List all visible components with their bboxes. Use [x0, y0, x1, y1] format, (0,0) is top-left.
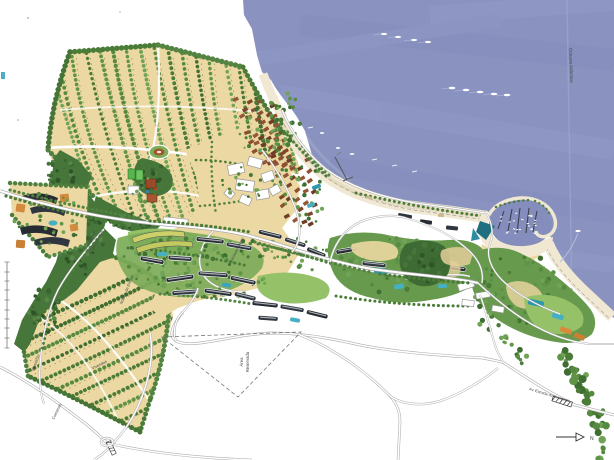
svg-text:Área: Área [239, 357, 244, 367]
svg-text:Reservada: Reservada [245, 351, 250, 372]
svg-text:N: N [590, 436, 594, 442]
